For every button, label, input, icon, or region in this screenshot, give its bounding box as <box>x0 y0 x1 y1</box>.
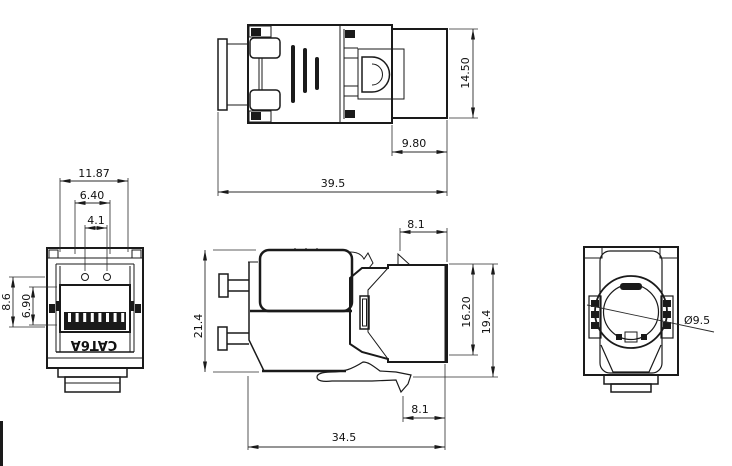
keystone-jack-drawing: 14.50 9.80 39.5 <box>0 0 732 466</box>
rear-cap-profile <box>350 254 447 362</box>
top-overall-length-dim-label: 39.5 <box>321 177 346 190</box>
front-port-outer-height-dim-label: 8.6 <box>0 293 13 311</box>
side-face-inner-height-dim-label: 16.20 <box>460 296 473 328</box>
latch-dome <box>362 57 390 92</box>
side-face-outer-height-dim-label: 19.4 <box>480 310 493 335</box>
bottom-spring <box>317 362 411 392</box>
side-body-length-dim-label: 34.5 <box>332 431 357 444</box>
side-top-tab-dim: 8.1 <box>400 218 447 262</box>
side-face-inner-height-dim: 16.20 <box>449 264 498 355</box>
front-outer-width-dim: 11.87 <box>60 167 128 252</box>
side-face-outer-height-dim: 19.4 <box>413 264 498 377</box>
part-label: CAT6A <box>71 337 118 352</box>
rear-cable-diameter-dim: Ø9.5 <box>587 305 714 332</box>
front-outer-width-dim-label: 11.87 <box>78 167 110 180</box>
punch-levers <box>218 274 249 350</box>
top-rear-depth-dim: 9.80 <box>392 125 447 156</box>
latch-spring <box>350 252 373 268</box>
front-tab-span-dim-label: 4.1 <box>87 214 105 227</box>
top-rear-depth-dim-label: 9.80 <box>402 137 427 150</box>
side-bottom-tab-dim: 8.1 <box>403 396 445 422</box>
rear-view: Ø9.5 <box>584 247 714 392</box>
screw-post <box>82 274 89 281</box>
vent-slot <box>303 48 307 93</box>
front-view-outline: CAT6A <box>47 248 143 392</box>
front-inner-width-dim-label: 6.40 <box>80 189 105 202</box>
front-view: CAT6A 11.87 6.40 4.1 8.6 <box>0 167 143 392</box>
top-view: 14.50 9.80 39.5 <box>218 25 478 196</box>
sheet-frame-corner-mark <box>0 421 3 466</box>
front-port-inner-height-dim-label: 6.90 <box>20 294 33 319</box>
top-height-dim-label: 14.50 <box>459 57 472 89</box>
vent-slot <box>315 57 319 90</box>
side-top-tab-dim-label: 8.1 <box>407 218 425 231</box>
top-overall-length-dim: 39.5 <box>218 112 447 196</box>
side-bottom-tab-dim-label: 8.1 <box>411 403 429 416</box>
side-view-outline <box>218 248 447 392</box>
drawing-sheet: 14.50 9.80 39.5 <box>0 0 732 466</box>
top-height-dim: 14.50 <box>449 29 478 118</box>
cable-entry-inner <box>604 285 659 340</box>
rj45-contacts <box>64 312 126 330</box>
wire-cap <box>260 250 352 311</box>
top-view-outline <box>218 25 447 123</box>
front-tab-span-dim: 4.1 <box>85 214 107 271</box>
rear-cable-diameter-dim-label: Ø9.5 <box>684 314 710 327</box>
side-overall-height-dim-label: 21.4 <box>192 314 205 339</box>
vent-slot <box>291 45 295 103</box>
side-view: 21.4 8.1 16.20 19.4 8.1 34.5 <box>192 218 498 450</box>
screw-post <box>104 274 111 281</box>
rear-view-outline <box>584 247 678 392</box>
